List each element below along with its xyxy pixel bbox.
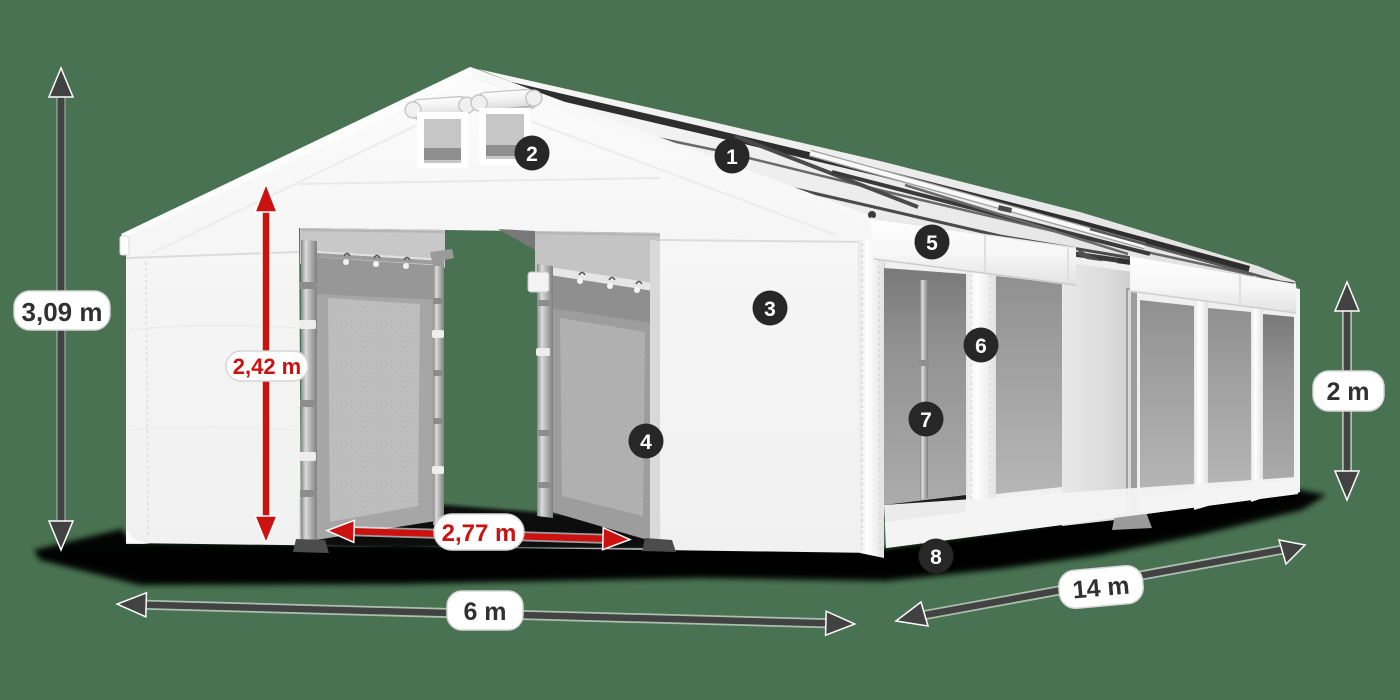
- svg-text:3: 3: [764, 298, 776, 321]
- svg-text:5: 5: [926, 232, 938, 255]
- svg-text:2: 2: [526, 143, 538, 166]
- svg-text:2 m: 2 m: [1326, 378, 1369, 406]
- svg-text:7: 7: [920, 409, 932, 432]
- svg-text:2,77 m: 2,77 m: [442, 520, 517, 547]
- svg-text:14 m: 14 m: [1071, 572, 1130, 605]
- svg-text:3,09 m: 3,09 m: [22, 297, 103, 327]
- svg-text:6 m: 6 m: [463, 598, 506, 626]
- svg-text:6: 6: [975, 335, 987, 358]
- svg-text:8: 8: [930, 546, 942, 569]
- svg-text:2,42 m: 2,42 m: [233, 354, 302, 379]
- svg-text:4: 4: [640, 431, 652, 454]
- svg-text:1: 1: [726, 146, 738, 169]
